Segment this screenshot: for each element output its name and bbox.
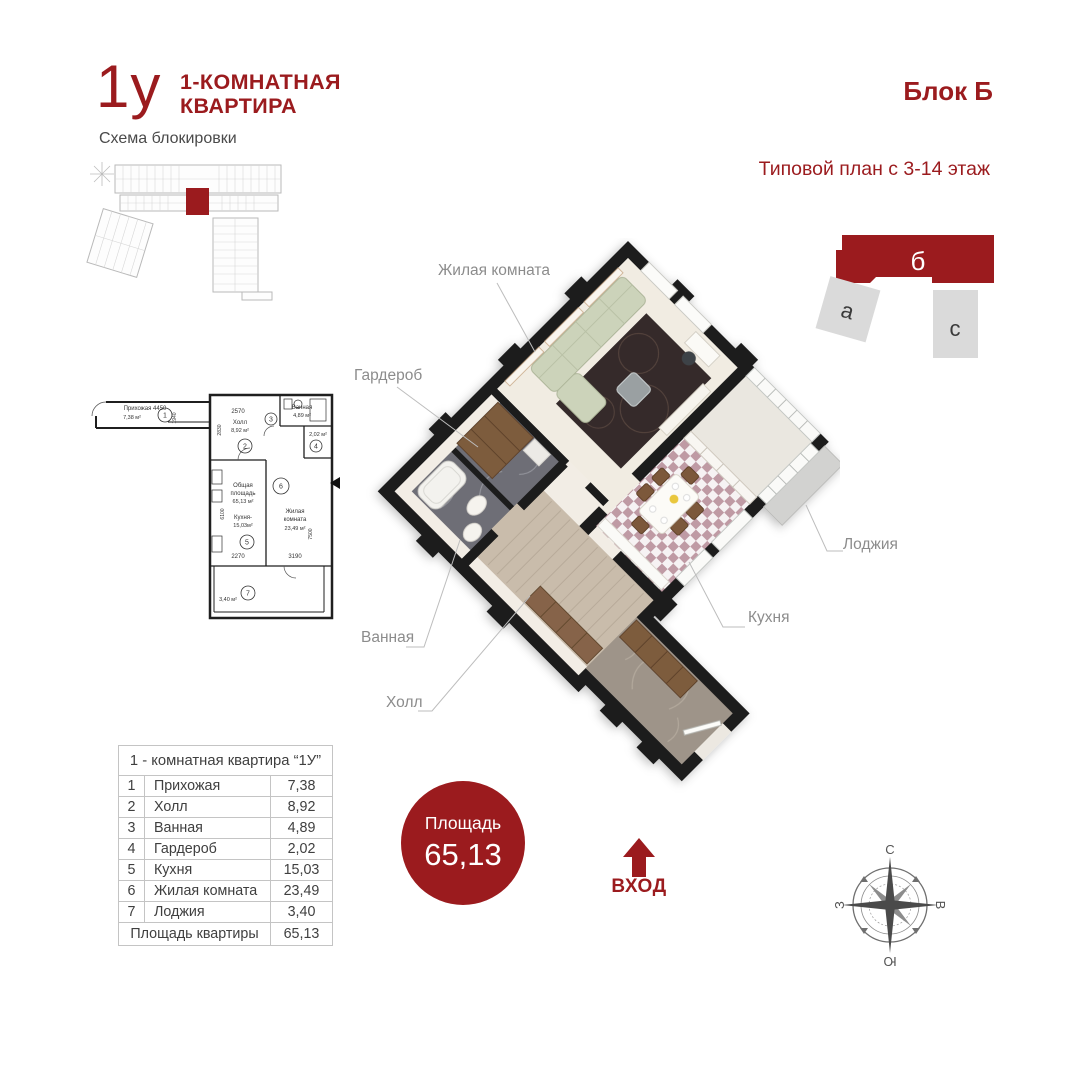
table-row: 4 Гардероб 2,02 bbox=[119, 839, 333, 860]
logo-1u: 1у bbox=[96, 52, 161, 121]
apartment-type-line1: 1-КОМНАТНАЯ bbox=[180, 70, 341, 94]
plan2d-texts: Прихожая 4450 7,38 м² 1940 2570 2830 Хол… bbox=[123, 405, 327, 603]
svg-text:7: 7 bbox=[246, 591, 250, 598]
table-row: 3 Ванная 4,89 bbox=[119, 818, 333, 839]
floor-range-subtitle: Типовой план с 3-14 этаж bbox=[690, 158, 990, 181]
svg-text:1: 1 bbox=[163, 413, 167, 420]
floorplan-2d: Прихожая 4450 7,38 м² 1940 2570 2830 Хол… bbox=[88, 386, 340, 631]
svg-text:комната: комната bbox=[284, 517, 307, 523]
compass-rose: С В Ю З bbox=[835, 843, 955, 968]
entrance-arrow-icon bbox=[623, 838, 655, 877]
scheme-highlight-unit bbox=[186, 188, 209, 215]
label-living-room: Жилая комната bbox=[438, 262, 550, 280]
scheme-compass-icon bbox=[90, 162, 114, 186]
svg-text:6: 6 bbox=[279, 484, 283, 491]
area-badge-value: 65,13 bbox=[424, 837, 502, 873]
blocking-scheme-label: Схема блокировки bbox=[99, 130, 237, 148]
area-badge-label: Площадь bbox=[425, 813, 501, 834]
compass-south: Ю bbox=[883, 954, 896, 968]
svg-text:8,92 м²: 8,92 м² bbox=[231, 428, 249, 434]
table-row: 5 Кухня 15,03 bbox=[119, 860, 333, 881]
table-total-value: 65,13 bbox=[271, 923, 333, 946]
table-row: 7 Лоджия 3,40 bbox=[119, 902, 333, 923]
scheme-block-tail bbox=[242, 292, 272, 300]
svg-text:65,13 м²: 65,13 м² bbox=[233, 499, 254, 505]
svg-text:2: 2 bbox=[243, 444, 247, 451]
svg-text:2830: 2830 bbox=[217, 424, 223, 435]
label-hall: Холл bbox=[386, 694, 423, 712]
table-row: 2 Холл 8,92 bbox=[119, 797, 333, 818]
svg-text:5: 5 bbox=[245, 540, 249, 547]
compass-west: З bbox=[835, 901, 847, 909]
svg-text:Прихожая 4450: Прихожая 4450 bbox=[124, 406, 167, 412]
plan-sheet: 1у 1-КОМНАТНАЯ КВАРТИРА Схема блокировки… bbox=[0, 0, 1080, 1080]
entrance-label: ВХОД bbox=[602, 876, 676, 898]
svg-text:23,49 м²: 23,49 м² bbox=[285, 526, 306, 532]
svg-text:Жилая: Жилая bbox=[286, 509, 305, 515]
label-bath: Ванная bbox=[361, 629, 414, 647]
svg-text:4: 4 bbox=[314, 444, 318, 451]
room-area-table: 1 - комнатная квартира “1У” 1 Прихожая 7… bbox=[118, 745, 333, 946]
table-row: 6 Жилая комната 23,49 bbox=[119, 881, 333, 902]
svg-text:3190: 3190 bbox=[288, 554, 302, 560]
table-row: 1 Прихожая 7,38 bbox=[119, 776, 333, 797]
scheme-block-c bbox=[213, 218, 258, 292]
table-total-row: Площадь квартиры 65,13 bbox=[119, 923, 333, 946]
svg-text:3: 3 bbox=[269, 417, 273, 424]
svg-text:2,02 м²: 2,02 м² bbox=[309, 432, 327, 438]
area-badge: Площадь 65,13 bbox=[401, 781, 525, 905]
block-c-label: с bbox=[950, 316, 961, 341]
svg-text:Общая: Общая bbox=[233, 483, 253, 489]
label-wardrobe: Гардероб bbox=[354, 367, 422, 385]
svg-text:Ванная: Ванная bbox=[292, 405, 313, 411]
svg-text:Холл: Холл bbox=[233, 420, 248, 426]
compass-main-points bbox=[842, 857, 938, 953]
apartment-type-title: 1-КОМНАТНАЯ КВАРТИРА bbox=[180, 70, 341, 118]
apartment-type-line2: КВАРТИРА bbox=[180, 94, 341, 118]
svg-text:6100: 6100 bbox=[220, 508, 226, 519]
table-title-row: 1 - комнатная квартира “1У” bbox=[119, 746, 333, 776]
block-diagram: б а с bbox=[812, 224, 1007, 366]
table-total-label: Площадь квартиры bbox=[119, 923, 271, 946]
block-title: Блок Б bbox=[840, 76, 993, 107]
table-title: 1 - комнатная квартира “1У” bbox=[119, 746, 333, 776]
svg-text:4,89 м²: 4,89 м² bbox=[293, 413, 311, 419]
floorplan-3d bbox=[320, 238, 840, 838]
svg-text:2270: 2270 bbox=[231, 554, 245, 560]
compass-north: С bbox=[885, 843, 894, 857]
plan2d-main-walls bbox=[210, 395, 332, 618]
svg-text:площадь: площадь bbox=[230, 491, 255, 497]
label-kitchen: Кухня bbox=[748, 609, 789, 627]
svg-text:7500: 7500 bbox=[308, 528, 314, 539]
svg-text:Кухня-: Кухня- bbox=[234, 515, 252, 521]
blocking-scheme-map bbox=[82, 155, 297, 305]
compass-east: В bbox=[933, 901, 948, 910]
svg-text:7,38 м²: 7,38 м² bbox=[123, 415, 141, 421]
plan2d-entry-door-arc bbox=[92, 402, 106, 416]
svg-text:1940: 1940 bbox=[172, 412, 178, 423]
block-b-label: б bbox=[911, 246, 926, 276]
svg-text:15,03м²: 15,03м² bbox=[233, 523, 253, 529]
svg-text:2570: 2570 bbox=[231, 409, 245, 415]
label-loggia: Лоджия bbox=[843, 536, 898, 554]
svg-text:3,40 м²: 3,40 м² bbox=[219, 597, 237, 603]
